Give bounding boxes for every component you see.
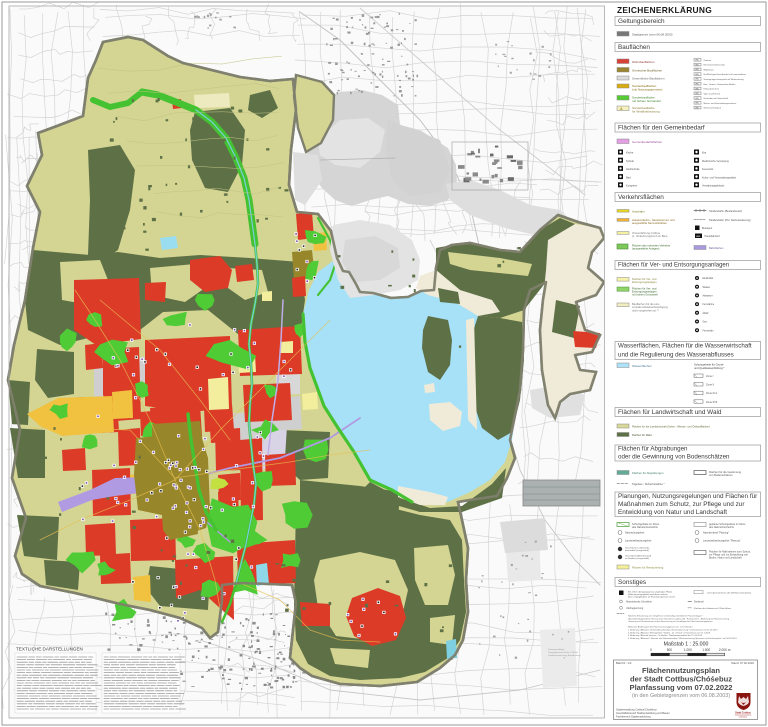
svg-text:Entsorgungsanlagen: Entsorgungsanlagen: [632, 280, 657, 284]
svg-text:dene eingegliederte an Flurstü: dene eingegliederte an Flurstücksgrenzen…: [628, 596, 676, 599]
svg-text:Flächen für Wald: Flächen für Wald: [632, 433, 652, 437]
svg-text:des Naturschutzrechts: des Naturschutzrechts: [709, 526, 735, 529]
svg-text:Kultur- und Veranstaltungsstät: Kultur- und Veranstaltungsstätte: [702, 176, 737, 179]
svg-text:Kirche: Kirche: [626, 151, 634, 155]
svg-text:Möbelhaus: Möbelhaus: [704, 70, 714, 72]
svg-text:Fernwärme: Fernwärme: [703, 303, 715, 306]
svg-text:Abfall: Abfall: [703, 312, 709, 315]
svg-text:1.500: 1.500: [702, 648, 710, 652]
svg-text:Flächen für Renaturierung: Flächen für Renaturierung: [632, 566, 664, 570]
svg-text:für Windkraftnutzung: für Windkraftnutzung: [632, 109, 660, 113]
svg-text:Ein örtlich übergangsweise ang: Ein örtlich übergangsweise angelegtes Pl…: [628, 591, 673, 594]
svg-text:(ausgewählte Anlagen): (ausgewählte Anlagen): [632, 247, 659, 251]
svg-text:Gemeinbedarfsflächen: Gemeinbedarfsflächen: [632, 140, 663, 144]
svg-text:1. Änderung "Altbauten Großsie: 1. Änderung "Altbauten Großsiedlung Sand…: [628, 629, 718, 632]
svg-text:nicht übernommene alte B-Pläne: nicht übernommene alte B-Pläne (Checklis…: [707, 591, 751, 594]
svg-text:Hauptbahnhof: Hauptbahnhof: [705, 235, 720, 238]
svg-text:ausgewählte Sammelstraßen: ausgewählte Sammelstraßen: [632, 221, 667, 225]
svg-text:Maßnahmen zum Schutz, zur Pfle: Maßnahmen zum Schutz, zur Pflege und zur: [618, 501, 745, 508]
svg-text:-Nutzung und Gesamtraum mit de: -Nutzung und Gesamtraum mit der Bezeichn…: [628, 620, 713, 623]
svg-text:ZEICHENERKLÄRUNG: ZEICHENERKLÄRUNG: [617, 5, 712, 15]
svg-text:Verwaltungsgebäude: Verwaltungsgebäude: [702, 185, 725, 188]
svg-text:Verkehrsflächen: Verkehrsflächen: [618, 194, 664, 201]
svg-text:Abweichende Grenzlinie: Abweichende Grenzlinie: [626, 601, 652, 604]
svg-text:Maßstab 1 : 25.000: Maßstab 1 : 25.000: [664, 642, 709, 648]
svg-text:Geschützter Alleenbestand: Geschützter Alleenbestand: [625, 554, 652, 557]
svg-text:Zone III B: Zone III B: [706, 400, 718, 404]
svg-text:Landesvermessung Brandenburg: Landesvermessung Brandenburg: [548, 654, 581, 657]
svg-text:Busdepot: Busdepot: [702, 227, 712, 230]
svg-text:Schule: Schule: [626, 159, 634, 163]
svg-text:Kita: Kita: [702, 152, 707, 155]
svg-text:Wohnbauflächen: Wohnbauflächen: [632, 60, 655, 64]
svg-text:Sport und Freizeit: Sport und Freizeit: [704, 92, 721, 95]
svg-text:Wirksame Änderungen des Fläche: Wirksame Änderungen des Flächennutzungsp…: [628, 626, 693, 629]
svg-text:(mit Nutzungsgrenzen): (mit Nutzungsgrenzen): [632, 87, 662, 91]
svg-text:Medizinische Versorgung: Medizinische Versorgung: [702, 160, 729, 163]
svg-text:Flächen für die Landwirtschaft: Flächen für die Landwirtschaft (Acker-, …: [632, 425, 710, 429]
svg-text:Stand: 07.02.2022: Stand: 07.02.2022: [731, 661, 754, 665]
svg-text:mit hohem Grünanteil: mit hohem Grünanteil: [632, 99, 661, 103]
svg-text:(1. Verkehrszug/noch im Bau): (1. Verkehrszug/noch im Bau): [632, 234, 668, 238]
svg-text:Stadt Cottbus: Stadt Cottbus: [735, 712, 751, 715]
svg-text:Feuerwehr: Feuerwehr: [702, 168, 714, 171]
svg-text:Flächen für Abgrabungen: Flächen für Abgrabungen: [632, 471, 664, 475]
svg-text:Fachbereich Stadtentwicklung: Fachbereich Stadtentwicklung: [616, 715, 651, 719]
svg-text:Wasserflächen, Flächen für die: Wasserflächen, Flächen für die Wasserwir…: [618, 343, 752, 350]
svg-text:Naturdenkmal "Planung": Naturdenkmal "Planung": [703, 532, 729, 535]
svg-text:Flächen des Gebiets mit § 34er: Flächen des Gebiets mit § 34er-Erlass: [694, 607, 732, 610]
svg-text:Autobahn: Autobahn: [632, 209, 645, 213]
svg-text:Boden, Natur und Landschaft: Boden, Natur und Landschaft: [709, 557, 742, 560]
svg-text:Kartengrundlage:: Kartengrundlage:: [548, 648, 565, 651]
svg-text:Messe- und Veranstaltungszentr: Messe- und Veranstaltungszentrum: [704, 102, 737, 105]
svg-text:Geltungsbereich: Geltungsbereich: [618, 18, 665, 25]
svg-text:Stadtgrenze (vom 06.08.2003): Stadtgrenze (vom 06.08.2003): [632, 33, 673, 37]
svg-text:Blatt Nr.: 1/2: Blatt Nr.: 1/2: [616, 661, 632, 665]
svg-text:Gewerbliche Bauflächen: Gewerbliche Bauflächen: [632, 77, 665, 81]
svg-text:Flächen für Landwirtschaft und: Flächen für Landwirtschaft und Wald: [618, 409, 722, 416]
svg-text:Flächen für Ver- und Entsorgun: Flächen für Ver- und Entsorgungsanlagen: [618, 263, 729, 269]
svg-text:Abwasser: Abwasser: [703, 295, 713, 298]
svg-text:Geschützter Landschafts-: Geschützter Landschafts-: [625, 546, 650, 549]
svg-text:0: 0: [650, 648, 652, 652]
svg-text:TEXTLICHE DARSTELLUNGEN: TEXTLICHE DARSTELLUNGEN: [16, 647, 83, 652]
svg-text:bestandteil (ausgewählt): bestandteil (ausgewählt): [625, 549, 649, 552]
svg-text:mit hohem Grünanteil: mit hohem Grünanteil: [632, 293, 658, 297]
svg-text:des Naturschutzrechts: des Naturschutzrechts: [632, 525, 659, 529]
svg-text:Landschaftsschutzgebiet "Planu: Landschaftsschutzgebiet "Planung": [703, 540, 741, 543]
svg-text:Bauflächen: Bauflächen: [618, 44, 650, 51]
svg-text:500: 500: [667, 648, 673, 652]
svg-text:Hochschule/Universität: Hochschule/Universität: [704, 64, 726, 67]
svg-text:Sonstiges: Sonstiges: [618, 579, 646, 586]
svg-text:(Nutzungsungsgebiet) und deren: (Nutzungsungsgebiet) und deren vorhan-: [628, 593, 668, 596]
svg-text:Bau-, Garten-, Heimwerker-Märk: Bau-, Garten-, Heimwerker-Märkte: [704, 83, 737, 86]
svg-text:A: A: [620, 107, 623, 111]
svg-text:Wasserflächen: Wasserflächen: [632, 364, 652, 368]
svg-text:Zentrum: Zentrum: [704, 59, 712, 62]
svg-text:Zone II: Zone II: [706, 383, 714, 387]
svg-text:Wasser: Wasser: [703, 286, 711, 289]
svg-text:1.000: 1.000: [684, 648, 692, 652]
svg-text:Planungen, Nutzungsregelungen: Planungen, Nutzungsregelungen und Fläche…: [618, 493, 758, 500]
svg-text:Elektrizität: Elektrizität: [703, 277, 714, 280]
svg-text:Einkaufszentrum: Einkaufszentrum: [704, 88, 720, 91]
svg-text:Straßenbahn (Pot. Netzerweiter: Straßenbahn (Pot. Netzerweiterung): [709, 218, 751, 222]
svg-text:Wissenschaftspark: Wissenschaftspark: [704, 107, 722, 110]
svg-text:Geschäftsbereich Stadtentwickl: Geschäftsbereich Stadtentwicklung und Ba…: [616, 711, 670, 715]
svg-text:3. Änderung "Altstand-Gewann -: 3. Änderung "Altstand-Gewann - Schließen…: [628, 634, 703, 637]
svg-text:Topographische Karte 1:25000: Topographische Karte 1:25000: [548, 651, 579, 654]
svg-text:Bad: Bad: [626, 175, 631, 179]
svg-text:2.000 m: 2.000 m: [719, 648, 731, 652]
svg-text:Gemischte Bauflächen: Gemischte Bauflächen: [632, 69, 663, 73]
svg-text:Straßenbahn (Bestandsnetz): Straßenbahn (Bestandsnetz): [709, 209, 742, 213]
svg-text:4. Änderung "Altbauten" Flurwe: 4. Änderung "Altbauten" Flurwert und Geb…: [628, 637, 737, 640]
svg-text:Chóśebuz: Chóśebuz: [739, 717, 748, 719]
svg-text:Zone III A: Zone III A: [706, 391, 717, 395]
svg-text:Gartenbau mit Gemüsehof: Gartenbau mit Gemüsehof: [704, 97, 729, 100]
svg-text:(in den Gebietsgrenzen vom 06.: (in den Gebietsgrenzen vom 06.08.2003): [632, 693, 730, 699]
svg-text:Kongress: Kongress: [626, 184, 638, 188]
svg-text:Versorgungsschwerpunkt mit Woh: Versorgungsschwerpunkt mit Wohnnutzung: [704, 78, 745, 81]
svg-text:Zone I: Zone I: [706, 374, 714, 378]
svg-text:Landschaftsschutzgebiet: Landschaftsschutzgebiet: [625, 540, 652, 543]
svg-text:nicht vorgesehen ist **: nicht vorgesehen ist **: [632, 308, 659, 312]
svg-text:und die Regulierung des Wasser: und die Regulierung des Wasserabflusses: [618, 352, 734, 359]
svg-text:Uferbegrenzung: Uferbegrenzung: [626, 607, 644, 610]
svg-text:Entwicklung von Natur und Land: Entwicklung von Natur und Landschaft: [618, 509, 727, 516]
svg-text:und Quellwasserbildung *: und Quellwasserbildung *: [694, 366, 724, 370]
svg-text:Stadtverwaltung Cottbus/Chóśeb: Stadtverwaltung Cottbus/Chóśebuz: [616, 708, 657, 712]
svg-text:von Bodenschätzen: von Bodenschätzen: [709, 473, 733, 477]
svg-text:oder die Gewinnung von Bodensc: oder die Gewinnung von Bodenschätzen: [618, 454, 730, 461]
svg-text:Überarbeitete/geänderte Versio: Überarbeitete/geänderte Version durch Be…: [628, 617, 730, 620]
svg-text:Denkmal: Denkmal: [694, 601, 704, 604]
svg-text:Planfassung vom 07.02.2022: Planfassung vom 07.02.2022: [630, 683, 733, 692]
svg-text:Hochschule: Hochschule: [626, 167, 640, 171]
svg-text:Flächen für Abgrabungen: Flächen für Abgrabungen: [618, 446, 688, 453]
svg-text:Naturschutzgebiet: Naturschutzgebiet: [625, 532, 645, 535]
svg-text:HBF: HBF: [696, 236, 701, 238]
svg-text:Bahnflächen: Bahnflächen: [709, 246, 724, 250]
svg-text:Tagebau - Sicherheitslinie *: Tagebau - Sicherheitslinie *: [632, 482, 665, 486]
svg-text:Fernmelde: Fernmelde: [703, 329, 715, 332]
svg-text:Flächen für den Gemeinbedarf: Flächen für den Gemeinbedarf: [618, 124, 705, 131]
svg-text:Nutzliche Erläuterung zum Umgr: Nutzliche Erläuterung zum Umgriff als re…: [628, 615, 703, 618]
svg-text:2. Änderung "Altbauten Wohngeb: 2. Änderung "Altbauten Wohngebiete "Stad…: [628, 631, 711, 634]
svg-text:Großflächiger Einzelhandel mit: Großflächiger Einzelhandel mit Innenstad…: [704, 73, 747, 76]
svg-text:an Straßen (ausgewählt): an Straßen (ausgewählt): [625, 557, 649, 560]
